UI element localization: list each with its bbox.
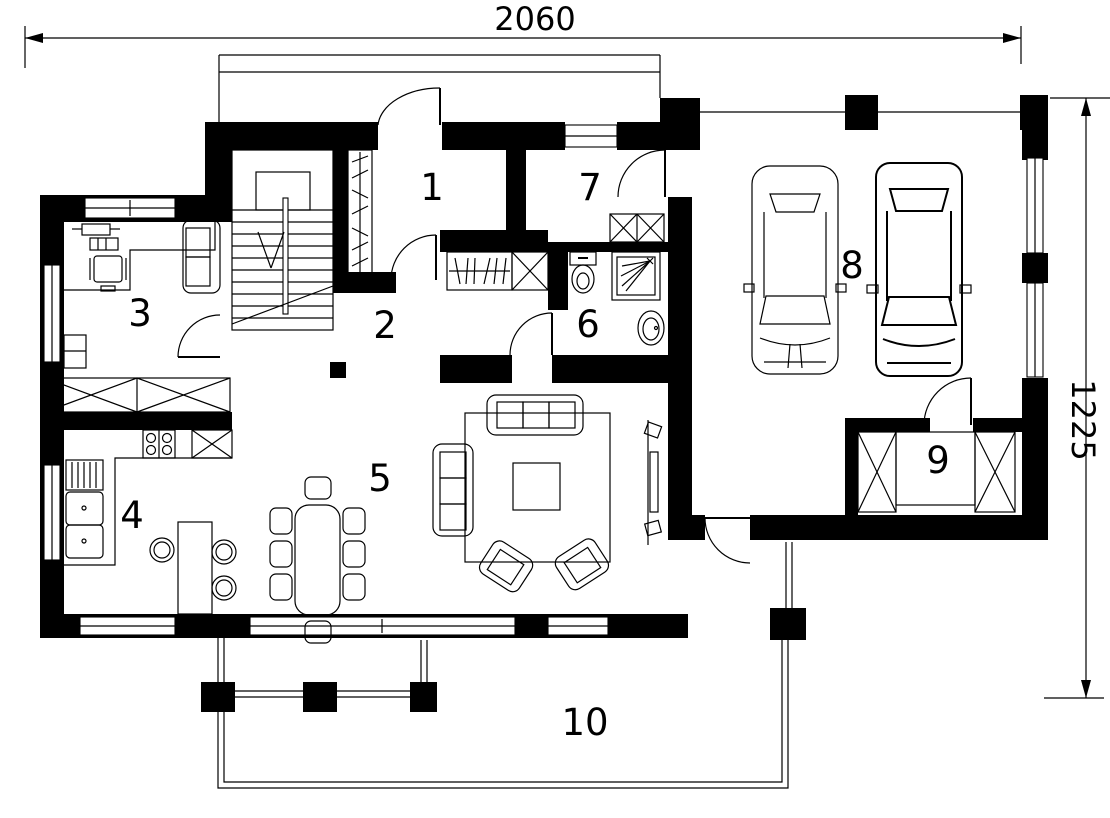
toilet: [570, 252, 596, 293]
office-chair: [90, 256, 126, 291]
terrace-column: [410, 682, 437, 712]
bar-stool: [212, 540, 236, 564]
door-back: [705, 518, 750, 563]
car-icon: [744, 166, 846, 374]
window: [80, 617, 175, 635]
living-room-furniture: [433, 395, 662, 595]
desk: [64, 222, 215, 290]
stair-direction-arrow: [258, 232, 271, 268]
door-entry-hall: [391, 235, 436, 280]
door-storage: [924, 378, 971, 425]
refrigerator: [192, 430, 232, 458]
room-label-10: 10: [561, 701, 608, 744]
terrace-column: [201, 682, 235, 712]
printer: [72, 224, 120, 235]
dining-chair: [343, 508, 365, 534]
washbasin: [638, 311, 664, 345]
hall-wardrobe: [512, 252, 548, 290]
car-icon: [867, 163, 971, 376]
stair-coat-closet: [348, 150, 372, 276]
room-label-1: 1: [420, 166, 444, 209]
window: [44, 465, 60, 560]
keyboard-shelf: [90, 238, 118, 250]
dining-chair: [343, 541, 365, 567]
storage-wardrobe: [858, 432, 896, 512]
dining-chair: [343, 574, 365, 600]
dim-arrow-up-icon: [1081, 98, 1091, 116]
dining-table: [295, 505, 340, 615]
shower: [612, 252, 660, 300]
dim-arrow-left-icon: [25, 33, 43, 43]
staircase: [232, 150, 333, 330]
bar-stool: [150, 538, 174, 562]
kitchen-sink: [66, 492, 103, 558]
dining-chair: [270, 541, 292, 567]
room-label-8: 8: [840, 244, 864, 287]
storage-wardrobe: [975, 432, 1015, 512]
room-label-9: 9: [926, 439, 950, 482]
floor-plan-drawing: 2060 1225: [0, 0, 1110, 818]
front-door: [378, 88, 440, 125]
room-label-4: 4: [120, 494, 144, 537]
dish-rack: [66, 460, 103, 490]
room-label-3: 3: [128, 292, 152, 335]
dining-chair: [270, 574, 292, 600]
hall-column: [330, 362, 346, 378]
room-label-6: 6: [576, 303, 600, 346]
room-labels: 1 2 3 4 5 6 7 8 9 10: [120, 166, 950, 744]
dimension-top: 2060: [25, 0, 1021, 68]
window: [250, 617, 515, 635]
dimension-right: 1225: [1044, 98, 1110, 698]
dining-chair: [270, 508, 292, 534]
kitchen-furniture: [64, 430, 236, 614]
bar-counter: [178, 522, 212, 614]
door-vestibule: [618, 150, 665, 197]
terrace-column: [770, 608, 806, 640]
door-bathroom: [510, 313, 552, 355]
office-wardrobe: [45, 378, 230, 412]
bar-stool: [212, 576, 236, 600]
window: [44, 265, 60, 362]
sofa: [487, 395, 583, 435]
dim-arrow-right-icon: [1003, 33, 1021, 43]
window: [1027, 283, 1043, 377]
sofa: [433, 444, 473, 536]
room-label-2: 2: [373, 304, 397, 347]
vestibule-wardrobe: [610, 214, 664, 242]
coffee-table: [513, 463, 560, 510]
dining-chair: [305, 477, 331, 499]
dim-arrow-down-icon: [1081, 680, 1091, 698]
window: [548, 617, 608, 635]
stair-handrail: [283, 198, 288, 314]
window: [1027, 158, 1043, 253]
armchair: [552, 536, 611, 593]
stove: [143, 430, 175, 458]
terrace-column: [303, 682, 337, 712]
door-office: [178, 315, 220, 357]
kitchen-counter: [64, 458, 232, 565]
window: [85, 198, 175, 218]
window: [565, 125, 617, 147]
office-cabinet: [64, 335, 86, 368]
hall-coat-rack: [447, 252, 512, 290]
room-label-5: 5: [368, 457, 392, 500]
floor-plan-canvas: 2060 1225: [0, 0, 1110, 818]
dimension-height-label: 1225: [1064, 379, 1102, 460]
walls: [40, 95, 1048, 638]
room-label-7: 7: [578, 166, 602, 209]
dimension-width-label: 2060: [494, 0, 575, 38]
tv-unit: [644, 420, 661, 545]
armchair: [476, 538, 535, 595]
